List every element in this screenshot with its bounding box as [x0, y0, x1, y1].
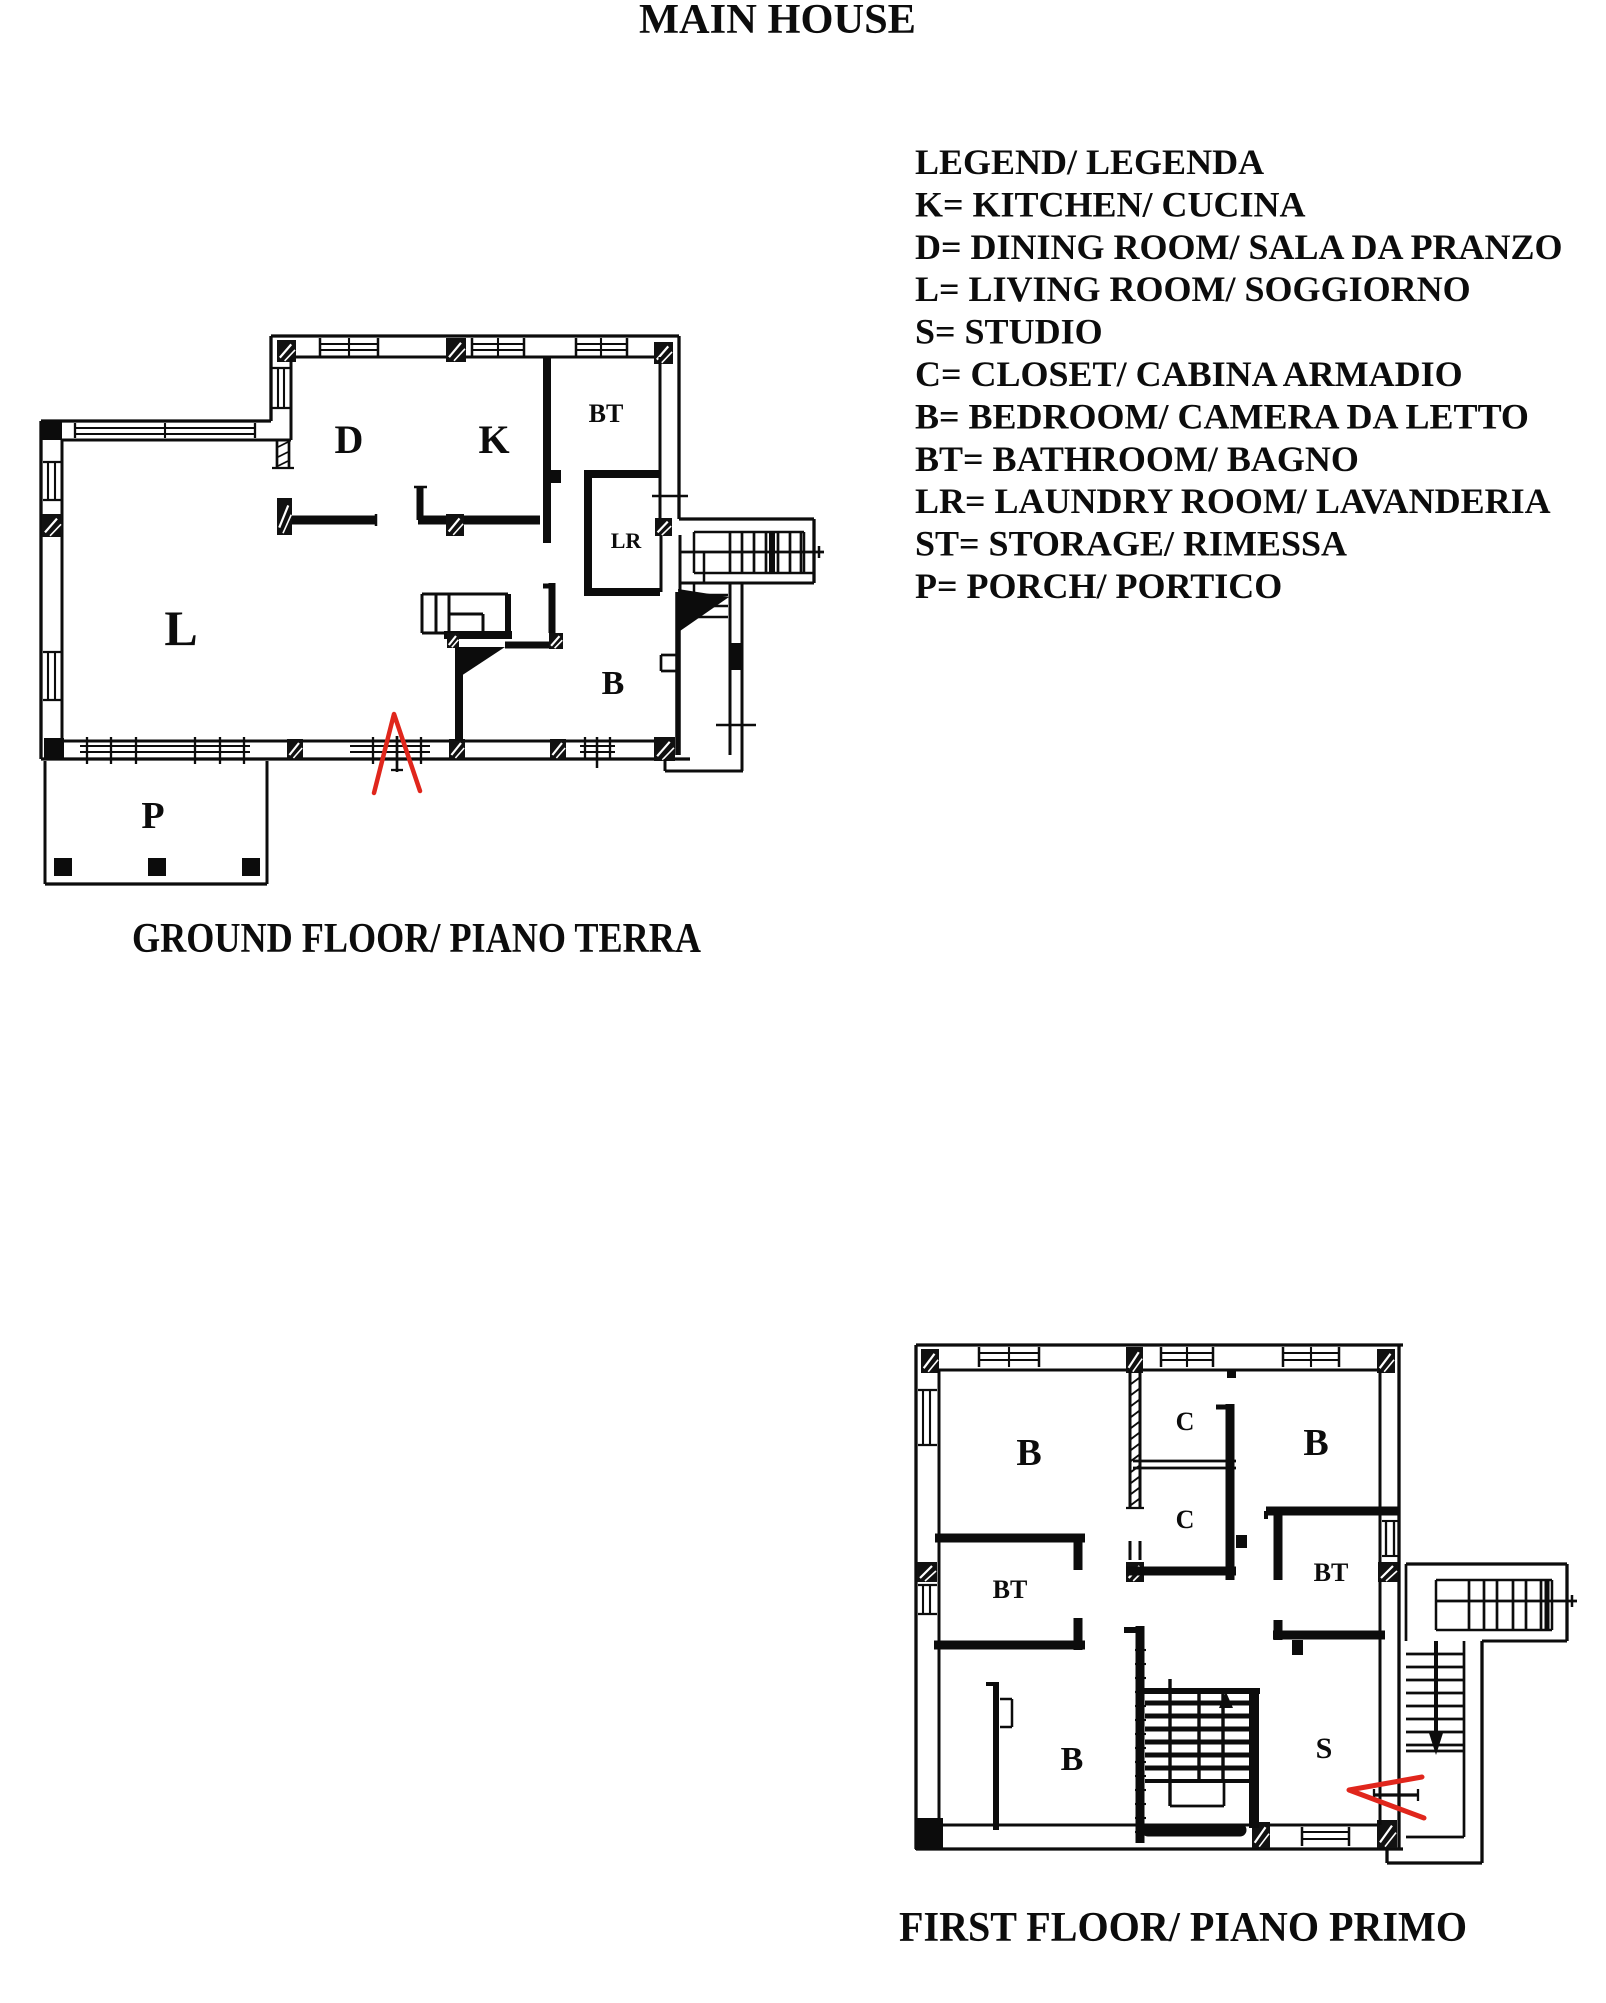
svg-text:L= LIVING ROOM/ SOGGIORNO: L= LIVING ROOM/ SOGGIORNO [915, 269, 1471, 309]
svg-text:K: K [478, 417, 509, 462]
svg-text:LR: LR [611, 528, 643, 553]
svg-text:BT: BT [1314, 1558, 1349, 1587]
svg-text:P: P [141, 795, 164, 837]
svg-text:S= STUDIO: S= STUDIO [915, 312, 1103, 352]
svg-text:C: C [1176, 1505, 1195, 1534]
svg-text:K= KITCHEN/ CUCINA: K= KITCHEN/ CUCINA [915, 184, 1306, 224]
svg-text:BT= BATHROOM/ BAGNO: BT= BATHROOM/ BAGNO [915, 439, 1359, 479]
svg-text:S: S [1316, 1732, 1333, 1765]
svg-text:GROUND FLOOR/ PIANO TERRA: GROUND FLOOR/ PIANO TERRA [132, 916, 702, 962]
svg-text:L: L [164, 600, 197, 656]
svg-text:LEGEND/ LEGENDA: LEGEND/ LEGENDA [915, 142, 1264, 182]
svg-text:LR= LAUNDRY ROOM/ LAVANDERIA: LR= LAUNDRY ROOM/ LAVANDERIA [915, 481, 1551, 521]
svg-text:B: B [1061, 1741, 1084, 1778]
svg-text:ST= STORAGE/ RIMESSA: ST= STORAGE/ RIMESSA [915, 524, 1347, 564]
svg-text:D: D [335, 417, 364, 462]
svg-text:MAIN HOUSE: MAIN HOUSE [639, 0, 916, 43]
svg-text:C: C [1176, 1407, 1195, 1436]
svg-text:B: B [1303, 1422, 1328, 1464]
svg-text:P= PORCH/ PORTICO: P= PORCH/ PORTICO [915, 566, 1282, 606]
svg-text:BT: BT [993, 1575, 1028, 1604]
svg-text:B: B [1016, 1432, 1041, 1474]
svg-text:FIRST FLOOR/ PIANO PRIMO: FIRST FLOOR/ PIANO PRIMO [899, 1905, 1467, 1951]
svg-text:C= CLOSET/ CABINA ARMADIO: C= CLOSET/ CABINA ARMADIO [915, 354, 1463, 394]
svg-text:D= DINING ROOM/ SALA DA PRANZO: D= DINING ROOM/ SALA DA PRANZO [915, 227, 1563, 267]
svg-text:B: B [602, 665, 625, 702]
svg-text:B= BEDROOM/ CAMERA DA LETTO: B= BEDROOM/ CAMERA DA LETTO [915, 396, 1529, 436]
svg-text:BT: BT [589, 399, 624, 428]
